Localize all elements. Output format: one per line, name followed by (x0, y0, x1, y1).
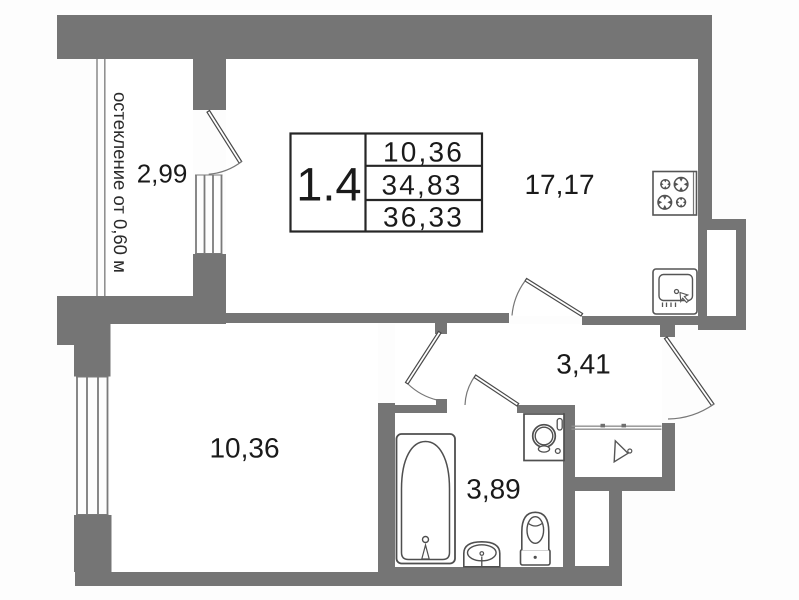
svg-text:3,89: 3,89 (466, 474, 521, 505)
svg-text:3,41: 3,41 (556, 349, 611, 380)
svg-text:34,83: 34,83 (381, 170, 462, 201)
svg-text:10,36: 10,36 (383, 137, 464, 168)
svg-text:17,17: 17,17 (524, 169, 594, 200)
svg-text:36,33: 36,33 (383, 202, 464, 233)
svg-text:остекление от 0,60 м: остекление от 0,60 м (110, 92, 131, 273)
svg-text:1.4: 1.4 (296, 157, 361, 210)
svg-text:10,36: 10,36 (209, 433, 279, 464)
svg-text:2,99: 2,99 (137, 159, 188, 189)
